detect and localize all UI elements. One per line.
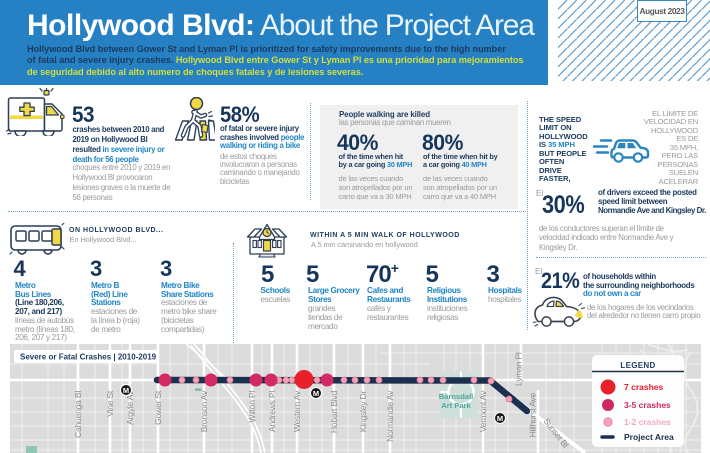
svg-text:7 crashes: 7 crashes [624,382,663,392]
svg-text:Kingsley Dr: Kingsley Dr [358,391,368,433]
svg-text:Cahuenga Bl: Cahuenga Bl [73,391,83,438]
svg-text:Barnsdall: Barnsdall [439,392,474,401]
svg-text:Vermont Av: Vermont Av [478,390,488,432]
svg-text:Bronson Av: Bronson Av [199,390,209,432]
svg-text:Hobart Blvd: Hobart Blvd [329,391,339,434]
svg-text:Gower St: Gower St [153,390,163,425]
svg-text:1-2 crashes: 1-2 crashes [624,417,671,427]
svg-text:Andrews Pl: Andrews Pl [267,391,277,432]
svg-text:Hillhurst Ave: Hillhurst Ave [528,393,538,438]
svg-text:Lyman Pl: Lyman Pl [514,352,524,386]
svg-text:Severe or Fatal Crashes | 2010: Severe or Fatal Crashes | 2010-2019 [20,353,157,362]
svg-text:Art Park: Art Park [441,401,471,410]
svg-text:Wilton Pl: Wilton Pl [247,391,257,423]
svg-text:LEGEND: LEGEND [620,361,655,370]
svg-text:Western Av: Western Av [292,390,302,432]
svg-text:Project Area: Project Area [624,432,674,442]
svg-text:M: M [123,386,129,395]
svg-text:Normandie Av: Normandie Av [385,390,395,442]
svg-text:M: M [313,389,319,398]
svg-text:Vine St: Vine St [105,390,115,417]
svg-text:M: M [497,414,503,423]
svg-text:3-5 crashes: 3-5 crashes [624,400,671,410]
